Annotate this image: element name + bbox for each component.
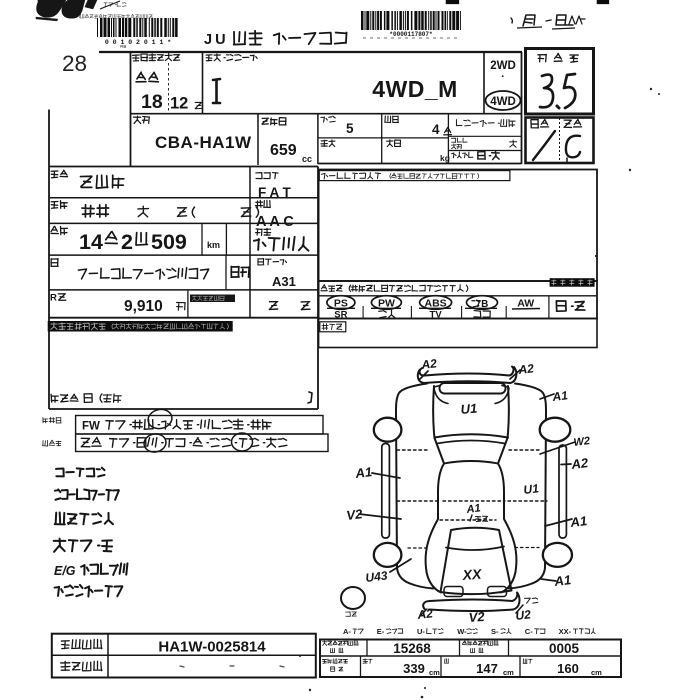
svg-text:AW: AW <box>517 298 534 310</box>
svg-text:659: 659 <box>270 142 297 159</box>
svg-text:0 0 1 0 2 0 1 1 *: 0 0 1 0 2 0 1 1 * <box>105 39 171 46</box>
svg-text:14: 14 <box>79 230 103 254</box>
svg-text:A1: A1 <box>354 464 373 481</box>
svg-text:F A T: F A T <box>258 185 291 200</box>
svg-text:U1: U1 <box>460 401 478 417</box>
svg-text:XX-: XX- <box>559 627 572 636</box>
svg-text:A1: A1 <box>551 388 569 404</box>
svg-text:0005: 0005 <box>549 641 580 656</box>
svg-text:HA1W-0025814: HA1W-0025814 <box>158 639 266 656</box>
svg-text:C-: C- <box>525 627 533 636</box>
svg-text:kg: kg <box>440 153 450 163</box>
svg-text:18: 18 <box>141 91 163 113</box>
svg-text:5: 5 <box>346 121 354 136</box>
svg-text:A2: A2 <box>420 356 438 372</box>
svg-text:A-: A- <box>343 627 351 636</box>
svg-text:4WD_M: 4WD_M <box>372 76 458 102</box>
svg-text:E/G: E/G <box>54 564 76 578</box>
svg-text:PS: PS <box>334 298 348 310</box>
svg-text:4WD: 4WD <box>490 96 516 108</box>
svg-text:R: R <box>50 293 57 304</box>
svg-text:cm: cm <box>503 668 514 677</box>
svg-text:JU: JU <box>204 32 229 48</box>
svg-text:U43: U43 <box>365 568 389 585</box>
svg-text:V2: V2 <box>468 609 486 625</box>
svg-text:W-: W- <box>457 627 467 636</box>
svg-text:160: 160 <box>557 661 579 676</box>
svg-text:A2: A2 <box>570 455 590 472</box>
svg-text:U1: U1 <box>523 481 540 497</box>
svg-text:15268: 15268 <box>393 641 431 656</box>
svg-text:2: 2 <box>121 230 133 254</box>
svg-text:4: 4 <box>432 122 440 137</box>
svg-text:147: 147 <box>476 661 498 676</box>
svg-text:S-: S- <box>491 627 499 636</box>
svg-text:E-: E- <box>377 627 385 636</box>
svg-text:XX: XX <box>461 566 483 583</box>
svg-text:A2: A2 <box>517 361 535 377</box>
svg-text:A A C: A A C <box>256 214 294 230</box>
svg-text:A2: A2 <box>416 606 434 622</box>
svg-text:A1: A1 <box>465 502 481 516</box>
svg-text:A31: A31 <box>272 274 296 289</box>
svg-text:cc: cc <box>302 154 312 164</box>
svg-text:28: 28 <box>62 51 87 76</box>
svg-text:*0000117807*: *0000117807* <box>389 31 432 38</box>
svg-text:U2: U2 <box>515 607 532 623</box>
svg-text:·: · <box>501 71 505 83</box>
svg-text:cm: cm <box>591 668 602 677</box>
svg-text:339: 339 <box>403 661 425 676</box>
svg-text:cm: cm <box>429 668 440 677</box>
svg-text:9,910: 9,910 <box>124 298 163 315</box>
svg-text:12: 12 <box>170 95 188 113</box>
svg-text:U-: U- <box>417 627 425 636</box>
svg-text:CBA-HA1W: CBA-HA1W <box>155 133 252 152</box>
svg-text:509: 509 <box>151 230 187 254</box>
svg-text:A1: A1 <box>569 513 588 530</box>
svg-text:PW: PW <box>378 298 395 310</box>
svg-text:km: km <box>207 240 220 250</box>
svg-text:FW: FW <box>82 421 100 433</box>
